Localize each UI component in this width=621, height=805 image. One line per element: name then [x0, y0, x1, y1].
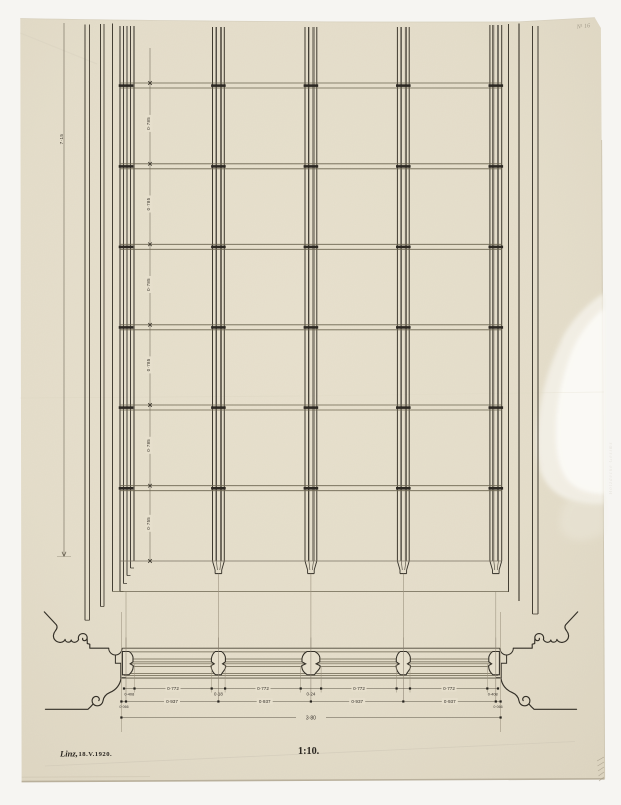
svg-text:Linz,: Linz, — [59, 749, 78, 759]
svg-text:0·066: 0·066 — [493, 705, 502, 709]
svg-text:0·772: 0·772 — [257, 686, 269, 691]
svg-text:0·785: 0·785 — [146, 358, 151, 371]
svg-text:0·937: 0·937 — [166, 699, 178, 704]
svg-text:1:10.: 1:10. — [298, 746, 320, 757]
svg-text:0·066: 0·066 — [119, 705, 128, 709]
svg-text:7·15: 7·15 — [59, 134, 64, 145]
svg-text:0·785: 0·785 — [146, 117, 151, 130]
svg-text:0·408: 0·408 — [124, 691, 134, 696]
svg-text:0·785: 0·785 — [146, 197, 151, 210]
svg-text:0·755: 0·755 — [146, 517, 151, 530]
svg-text:0·937: 0·937 — [444, 699, 456, 704]
svg-text:0·772: 0·772 — [353, 686, 365, 691]
svg-text:0·937: 0·937 — [259, 699, 271, 704]
svg-text:Holzdecke Gesims: Holzdecke Gesims — [609, 442, 614, 496]
svg-text:0·772: 0·772 — [443, 686, 455, 691]
svg-text:0·18: 0·18 — [214, 691, 223, 696]
svg-text:0·785: 0·785 — [146, 439, 151, 452]
svg-text:0·772: 0·772 — [167, 686, 179, 691]
svg-text:0·24: 0·24 — [307, 691, 316, 696]
svg-text:3·80: 3·80 — [306, 715, 316, 721]
svg-text:0·408: 0·408 — [488, 691, 498, 696]
svg-text:0·937: 0·937 — [351, 699, 363, 704]
svg-text:0·785: 0·785 — [146, 278, 151, 291]
svg-text:18.V.1920.: 18.V.1920. — [79, 751, 113, 758]
